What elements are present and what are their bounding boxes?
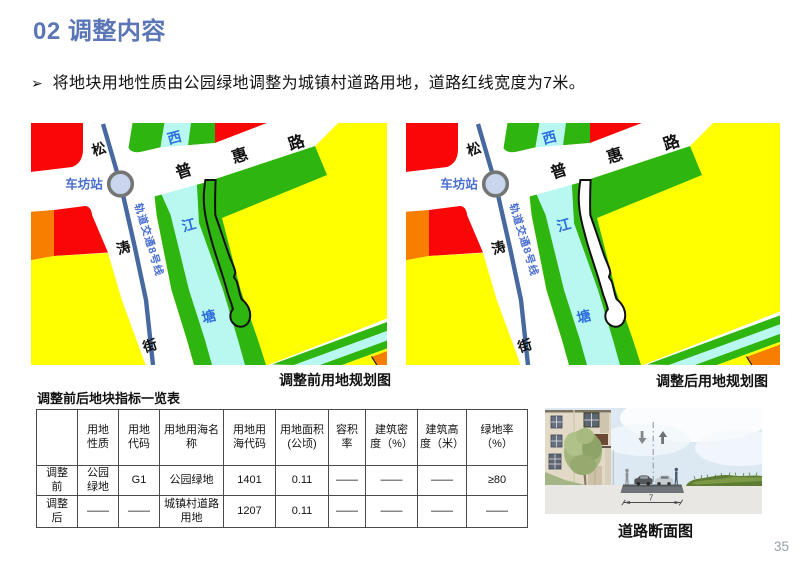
svg-text:7: 7 [649, 492, 654, 502]
